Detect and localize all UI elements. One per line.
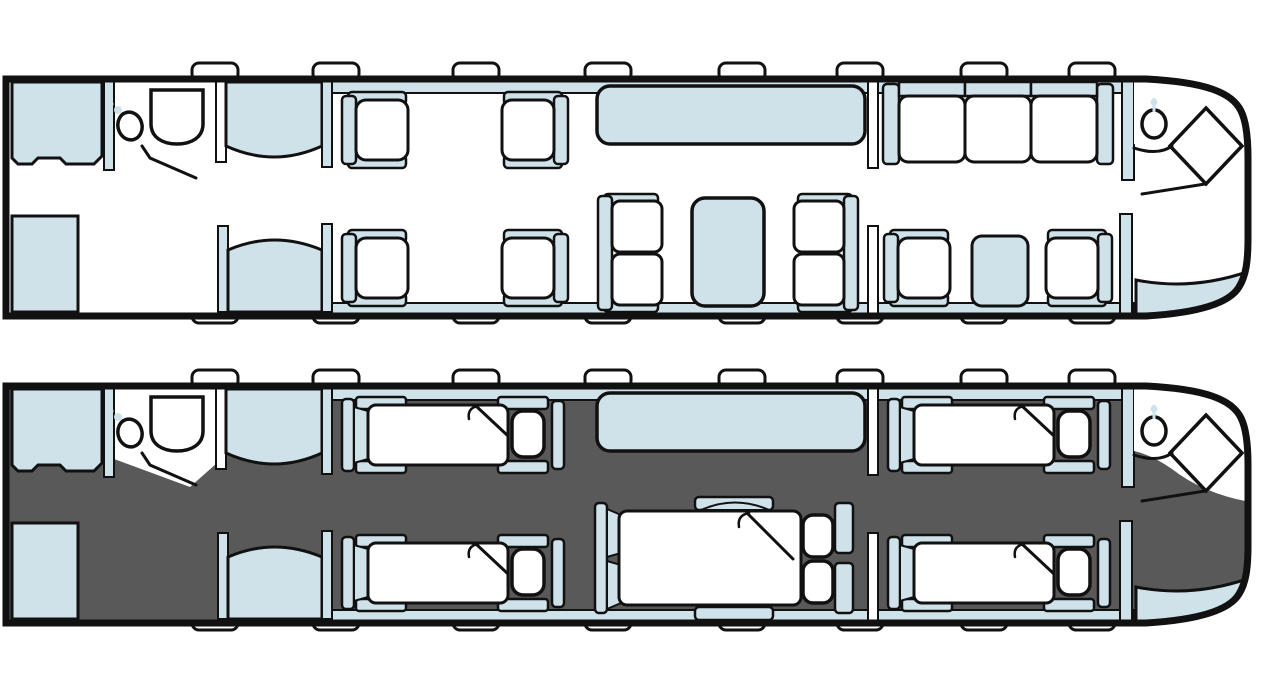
sofa-armrest — [1097, 84, 1113, 164]
single-bed-fwd-right — [342, 535, 564, 611]
aft-three-place-sofa — [883, 82, 1113, 164]
club-seat-aft-2 — [1046, 230, 1112, 306]
side-table — [972, 236, 1028, 306]
club-seat-fwd-right-2 — [502, 230, 568, 306]
single-bed-fwd-left — [342, 397, 564, 473]
bed-side-rail — [695, 607, 773, 620]
bed-pillow — [803, 515, 833, 557]
sofa-backrest — [965, 82, 1031, 96]
club-seat-fwd-left-2 — [502, 92, 568, 168]
plan-day-configuration — [6, 63, 1258, 323]
single-bed-aft-left — [888, 397, 1110, 473]
sofa-cushion — [1031, 96, 1097, 162]
sofa-cushion — [899, 96, 965, 162]
sofa-armrest — [883, 84, 899, 164]
sofa-backrest — [899, 82, 965, 96]
conference-table — [692, 198, 764, 306]
sofa-cushion — [965, 96, 1031, 162]
sofa-backrest — [1031, 82, 1097, 96]
bed-mattress — [619, 511, 801, 605]
club-seat-fwd-right-1 — [342, 230, 408, 306]
club-seat-fwd-left-1 — [342, 92, 408, 168]
bed-end-board — [595, 503, 607, 613]
cabin-floorplan-stage — [0, 0, 1280, 674]
conference-double-seat-left — [598, 194, 662, 312]
bed-foot-frame — [835, 563, 853, 613]
cabin-floorplans — [0, 0, 1280, 674]
double-bed — [595, 497, 853, 620]
single-bed-aft-right — [888, 535, 1110, 611]
plan-night-configuration — [6, 370, 1258, 630]
bed-pillow — [803, 561, 833, 603]
conference-double-seat-right — [794, 194, 858, 312]
club-seat-aft-1 — [884, 230, 950, 306]
bed-foot-frame — [835, 503, 853, 553]
